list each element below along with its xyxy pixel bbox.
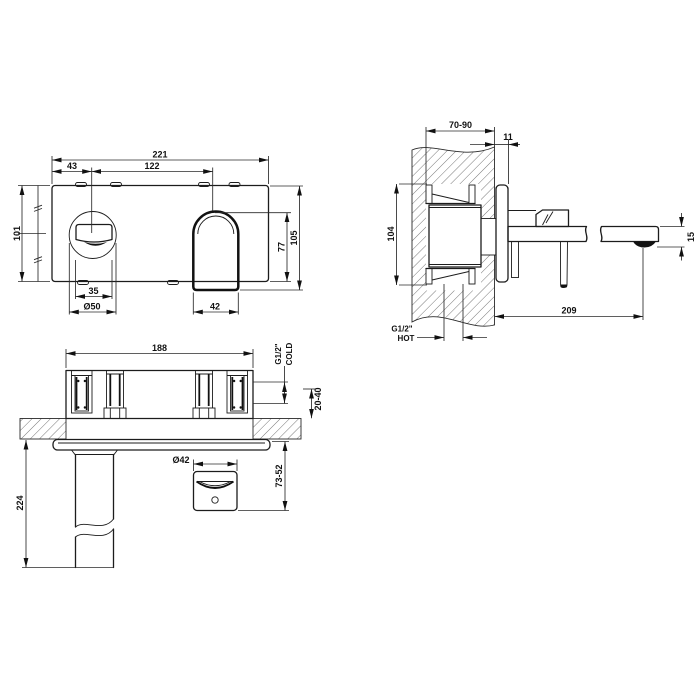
label-cold-inlet-size: G1/2" [274,343,283,364]
front-mount-tabs [76,183,241,285]
side-handle-lever [508,210,569,288]
dim-front-height-left: 101 [12,226,22,241]
dim-plan-spout-drop: 224 [15,495,25,510]
plan-handle [194,472,238,511]
dim-front-handle-offset: 43 [67,161,77,171]
plan-view: 188 G1/2" COLD 20-40 224 Ø42 73-52 [15,342,323,567]
front-spout-arch [193,212,238,290]
dim-plan-handle-diameter: Ø42 [172,455,189,465]
front-plate [52,186,269,282]
side-spout [508,227,659,248]
front-dimensions: 221 43 122 101 77 105 35 Ø50 42 [12,150,303,315]
plan-dimensions: 188 G1/2" COLD 20-40 224 Ø42 73-52 [15,342,323,567]
dim-side-spout-end-height: 15 [686,232,696,242]
plan-plate [53,440,270,451]
plan-wall-section [20,419,301,440]
dim-front-trim-diameter: Ø50 [83,302,100,312]
dim-side-rough-in-height: 104 [386,226,396,241]
plan-rough-in-body [66,371,253,419]
side-aerator [633,242,656,248]
dim-front-77: 77 [277,242,287,252]
dim-plan-handle-projection: 73-52 [274,464,284,487]
label-hot-inlet-size: G1/2" [391,325,412,334]
side-cartridge-stub [512,242,519,278]
plan-spout [72,450,118,568]
dim-front-width: 221 [152,150,167,160]
side-view: 70-90 11 104 15 209 G1/2" HOT [386,120,696,343]
dim-front-handle-to-spout: 122 [144,161,159,171]
dim-plan-inlet-depth-range: 20-40 [313,387,323,410]
front-handle-knob [76,225,112,246]
front-view: 221 43 122 101 77 105 35 Ø50 42 [12,150,303,315]
dim-side-plate-thickness: 11 [503,132,513,142]
label-cold-inlet: COLD [285,342,294,365]
dim-front-height: 105 [289,230,299,245]
label-hot-inlet: HOT [398,334,415,343]
technical-drawing: 221 43 122 101 77 105 35 Ø50 42 [0,0,700,700]
dim-side-wall-depth: 70-90 [449,120,472,130]
dim-front-handle-cut: 35 [88,286,98,296]
side-plate-edge [496,185,508,282]
dim-plan-rough-in-width: 188 [152,343,167,353]
dim-front-spout-width: 42 [210,302,220,312]
dim-side-spout-reach: 209 [561,306,576,316]
side-wall-section [412,147,497,326]
